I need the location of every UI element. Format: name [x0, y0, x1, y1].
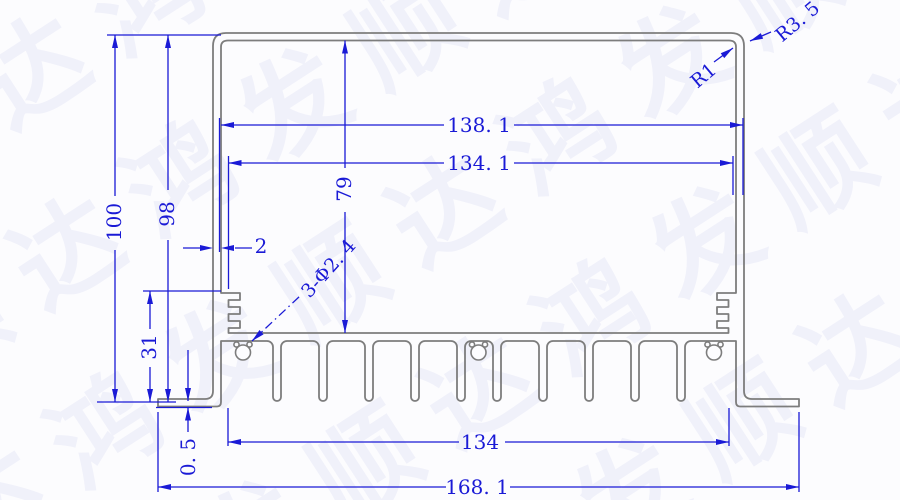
dim-label-overall-width: 168. 1	[445, 475, 509, 499]
dimension-arrow	[158, 484, 171, 490]
dimension-arrow	[200, 245, 213, 251]
watermark-layer: 鸿发顺达鸿发顺达鸿发发顺达鸿发顺达鸿发顺顺达鸿发顺达鸿发顺达达鸿发顺达鸿发顺达鸿…	[0, 0, 900, 500]
screw-port-center	[469, 342, 487, 360]
dimension-arrow	[228, 439, 241, 445]
dimension-arrow	[147, 291, 153, 304]
watermark-character: 顺	[330, 0, 485, 112]
watermark-character: 顺	[255, 204, 410, 364]
dimension-arrow	[165, 389, 171, 402]
screw-port-notch	[469, 342, 474, 347]
dim-label-groove-width: 134. 1	[447, 151, 511, 175]
watermark-character: 达	[779, 269, 900, 429]
cad-drawing: 鸿发顺达鸿发顺达鸿发发顺达鸿发顺达鸿发顺顺达鸿发顺达鸿发顺达达鸿发顺达鸿发顺达鸿…	[0, 0, 900, 500]
dim-label-wall-height: 98	[155, 201, 179, 226]
dim-label-fin-span: 134	[461, 430, 499, 454]
watermark-character: 鸿	[103, 100, 258, 260]
dim-label-foot-step: 0. 5	[176, 438, 200, 476]
watermark-rotated-grid: 鸿发顺达鸿发顺达鸿发发顺达鸿发顺达鸿发顺顺达鸿发顺达鸿发顺达达鸿发顺达鸿发顺达鸿…	[0, 0, 900, 500]
screw-port-notch	[234, 342, 239, 347]
drawing-canvas: 鸿发顺达鸿发顺达鸿发发顺达鸿发顺达鸿发顺顺达鸿发顺达鸿发顺达达鸿发顺达鸿发顺达鸿…	[0, 0, 900, 500]
dimension-arrow	[221, 245, 234, 251]
dim-label-inner-height: 79	[332, 176, 356, 201]
watermark-character: 发	[628, 164, 783, 324]
watermark-character: 鸿	[69, 0, 224, 78]
dim-label-wall-thickness: 2	[255, 234, 268, 258]
watermark-character: 达	[0, 0, 111, 152]
watermark-character: 鸿	[28, 351, 183, 500]
watermark-character: 顺	[741, 91, 896, 251]
dimension-arrow	[786, 484, 799, 490]
dim-label-inner-width-top: 138. 1	[447, 113, 511, 137]
watermark-character: 达	[0, 173, 145, 333]
screw-port-notch	[718, 342, 723, 347]
dimension-arrow	[342, 41, 348, 54]
dimension-arrow	[720, 160, 733, 166]
watermark-character: 发	[594, 0, 749, 143]
screw-port-left	[234, 342, 252, 360]
screw-port-notch	[705, 342, 710, 347]
screw-port-right	[705, 342, 723, 360]
dim-label-lower-section: 31	[137, 334, 161, 359]
screw-port-notch	[482, 342, 487, 347]
dim-label-overall-height: 100	[102, 203, 126, 241]
screw-port-notch	[247, 342, 252, 347]
dimension-arrow	[221, 122, 234, 128]
